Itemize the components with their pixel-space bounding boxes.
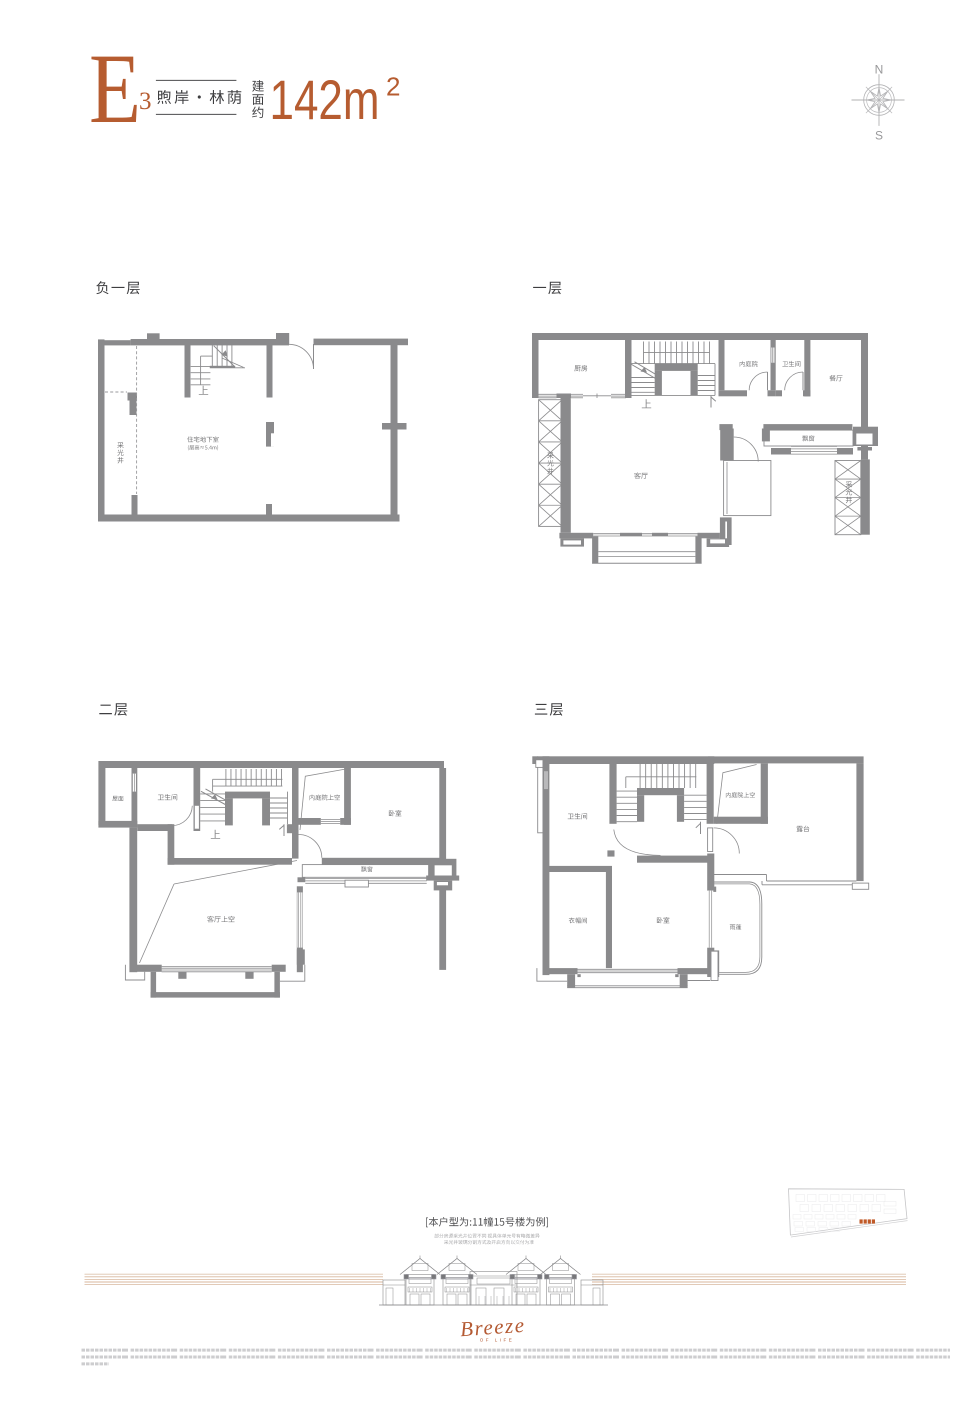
svg-text:E: E bbox=[89, 33, 141, 144]
svg-text:3: 3 bbox=[139, 88, 152, 115]
svg-text:142m: 142m bbox=[270, 68, 380, 131]
svg-text:N: N bbox=[875, 63, 884, 77]
svg-text:OF LIFE: OF LIFE bbox=[480, 1338, 515, 1343]
svg-text:2: 2 bbox=[386, 72, 400, 102]
svg-text:S: S bbox=[875, 129, 883, 143]
